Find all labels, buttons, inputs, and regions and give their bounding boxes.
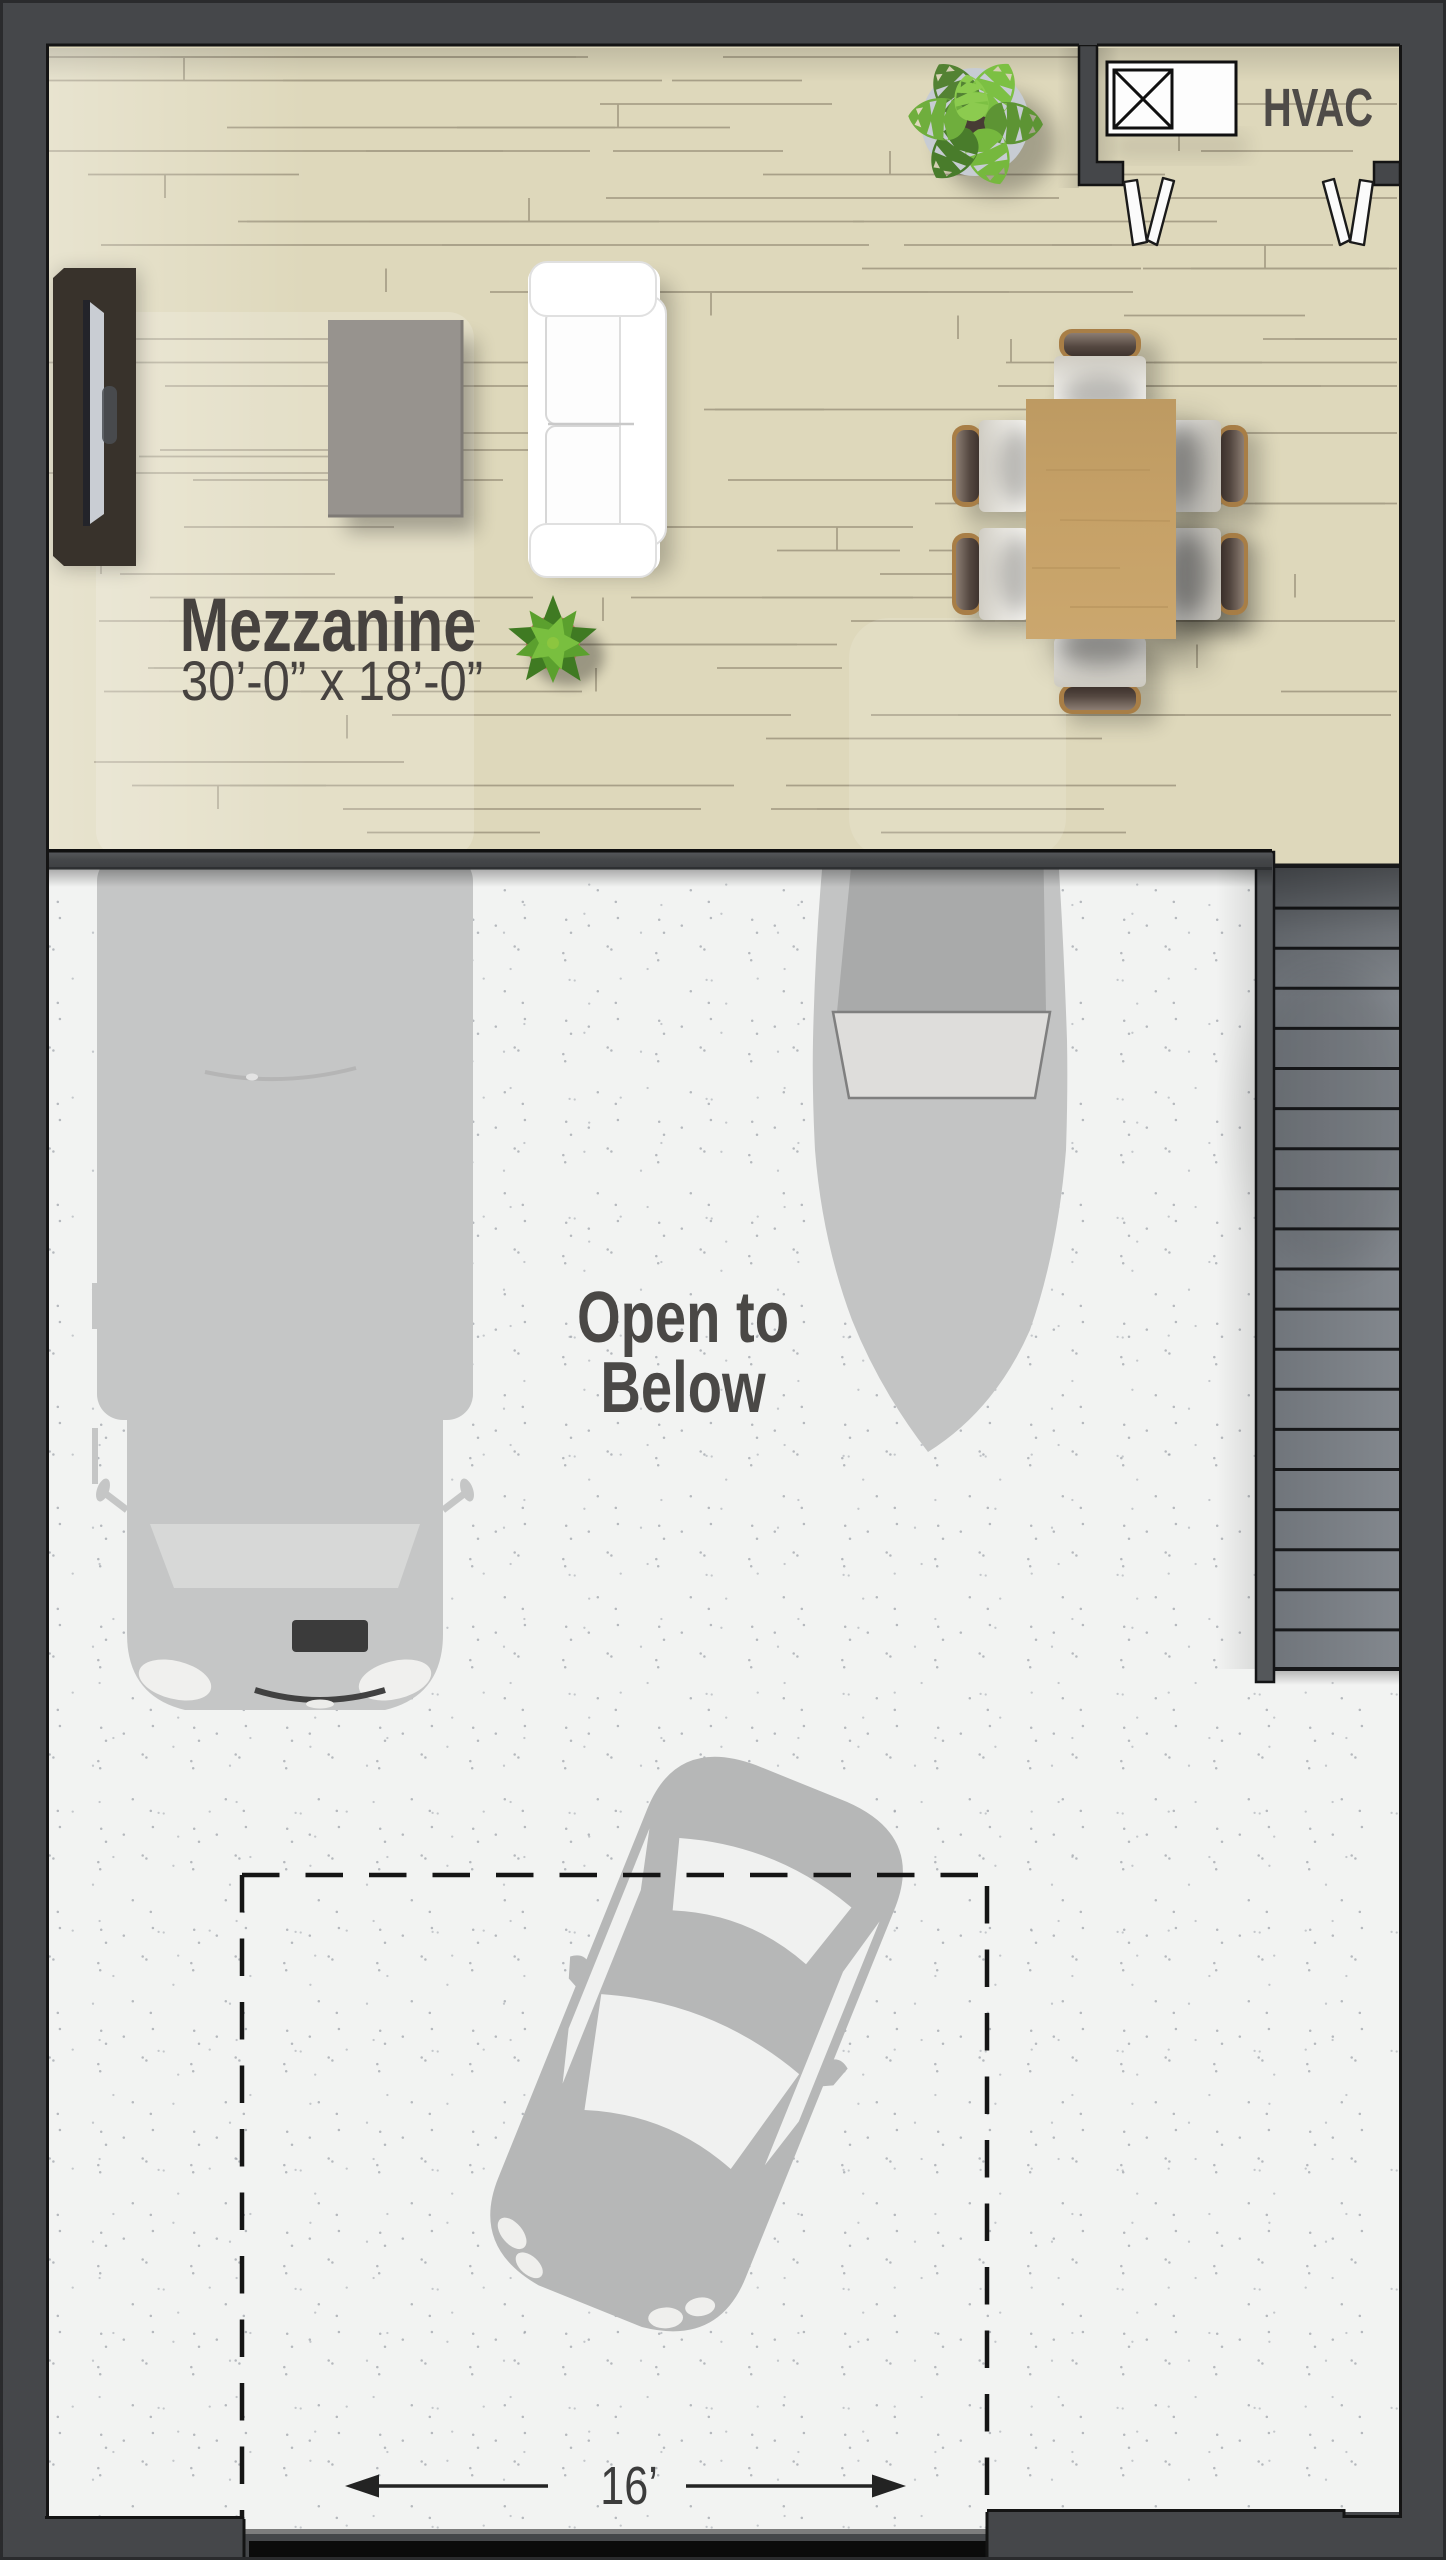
svg-text:Open to: Open to xyxy=(577,1277,789,1357)
svg-text:HVAC: HVAC xyxy=(1263,78,1373,138)
svg-text:Below: Below xyxy=(600,1347,766,1427)
svg-text:16’: 16’ xyxy=(600,2457,658,2517)
svg-text:30’-0” x 18’-0”: 30’-0” x 18’-0” xyxy=(181,650,483,713)
